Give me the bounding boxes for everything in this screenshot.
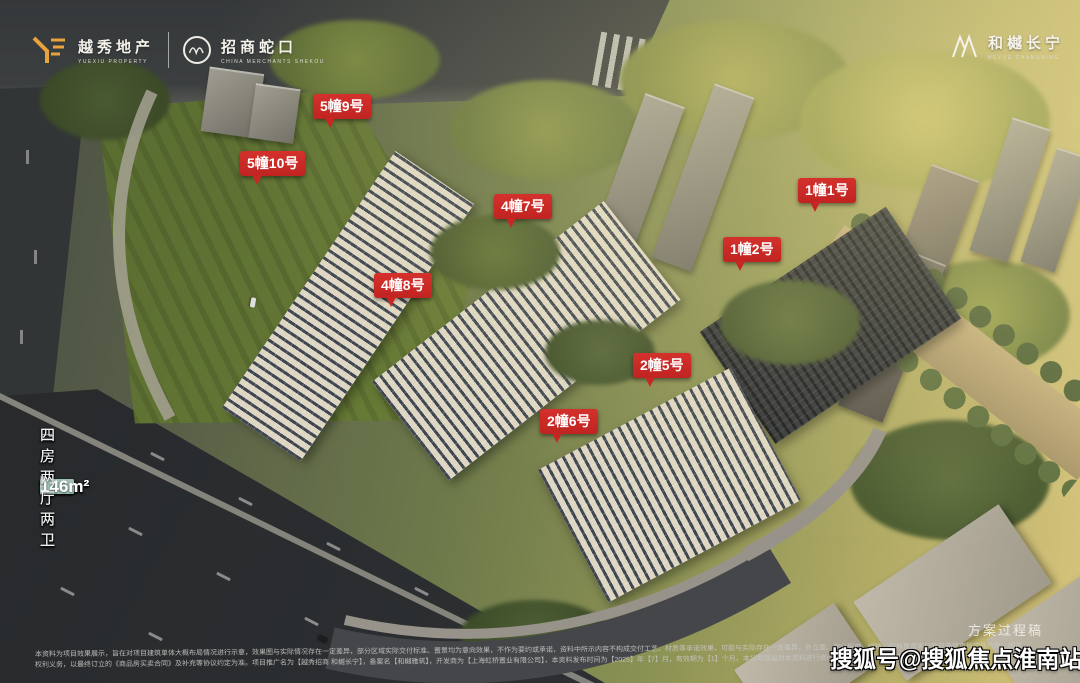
shekou-logo-text: 招商蛇口 CHINA MERCHANTS SHEKOU — [221, 36, 325, 65]
tag-pointer-icon — [325, 118, 335, 128]
project-name: 和樾长宁 — [988, 32, 1064, 53]
tag-pointer-icon — [645, 377, 655, 387]
tag-building-1-1: 1幢1号 — [798, 178, 856, 203]
right-connector-road — [745, 430, 880, 555]
shekou-logo-icon — [183, 36, 211, 64]
sohu-watermark: 搜狐号@搜狐焦点淮南站 — [830, 640, 1080, 674]
tag-building-5-10: 5幢10号 — [240, 151, 305, 176]
tag-text: 5幢9号 — [320, 98, 364, 114]
tag-pointer-icon — [386, 297, 396, 307]
yuexiu-logo-text: 越秀地产 YUEXIU PROPERTY — [78, 36, 154, 65]
tag-building-2-5: 2幢5号 — [633, 353, 691, 378]
project-subtitle: HEYUE CHANGNING — [988, 55, 1064, 61]
tag-pointer-icon — [252, 175, 262, 185]
tag-text: 1幢1号 — [805, 182, 849, 198]
tag-building-5-9: 5幢9号 — [313, 94, 371, 119]
tag-text: 2幢6号 — [547, 413, 591, 429]
draft-stage-note: 方案过程稿 — [968, 620, 1043, 639]
yuexiu-name: 越秀地产 — [78, 36, 154, 57]
tag-pointer-icon — [552, 433, 562, 443]
developer-logos: 越秀地产 YUEXIU PROPERTY 招商蛇口 CHINA MERCHANT… — [32, 32, 325, 68]
tag-building-4-8: 4幢8号 — [374, 273, 432, 298]
shekou-name: 招商蛇口 — [221, 36, 325, 57]
tag-text: 1幢2号 — [730, 241, 774, 257]
shekou-subtitle: CHINA MERCHANTS SHEKOU — [221, 59, 325, 65]
project-logo-text: 和樾长宁 HEYUE CHANGNING — [988, 32, 1064, 61]
tag-text: 2幢5号 — [640, 357, 684, 373]
tag-text: 5幢10号 — [247, 155, 298, 171]
tag-text: 4幢7号 — [501, 198, 545, 214]
yuexiu-logo-icon — [32, 35, 68, 65]
tag-pointer-icon — [810, 202, 820, 212]
project-logo: 和樾长宁 HEYUE CHANGNING — [950, 32, 1064, 61]
logo-divider — [168, 32, 169, 68]
tag-text: 4幢8号 — [381, 277, 425, 293]
park-path — [119, 92, 170, 418]
tag-pointer-icon — [735, 261, 745, 271]
yuexiu-subtitle: YUEXIU PROPERTY — [78, 59, 154, 65]
legend-desc: 四房两厅两卫 — [40, 424, 57, 550]
tag-building-2-6: 2幢6号 — [540, 409, 598, 434]
aerial-site-render: 建面约120m² 建面约143m² 建面约144m² 建面约144m² 建面约1… — [0, 0, 1080, 683]
tag-building-4-7: 4幢7号 — [494, 194, 552, 219]
tag-building-1-2: 1幢2号 — [723, 237, 781, 262]
tag-pointer-icon — [506, 218, 516, 228]
road-paths — [0, 0, 1080, 683]
heyue-logo-icon — [950, 34, 980, 60]
